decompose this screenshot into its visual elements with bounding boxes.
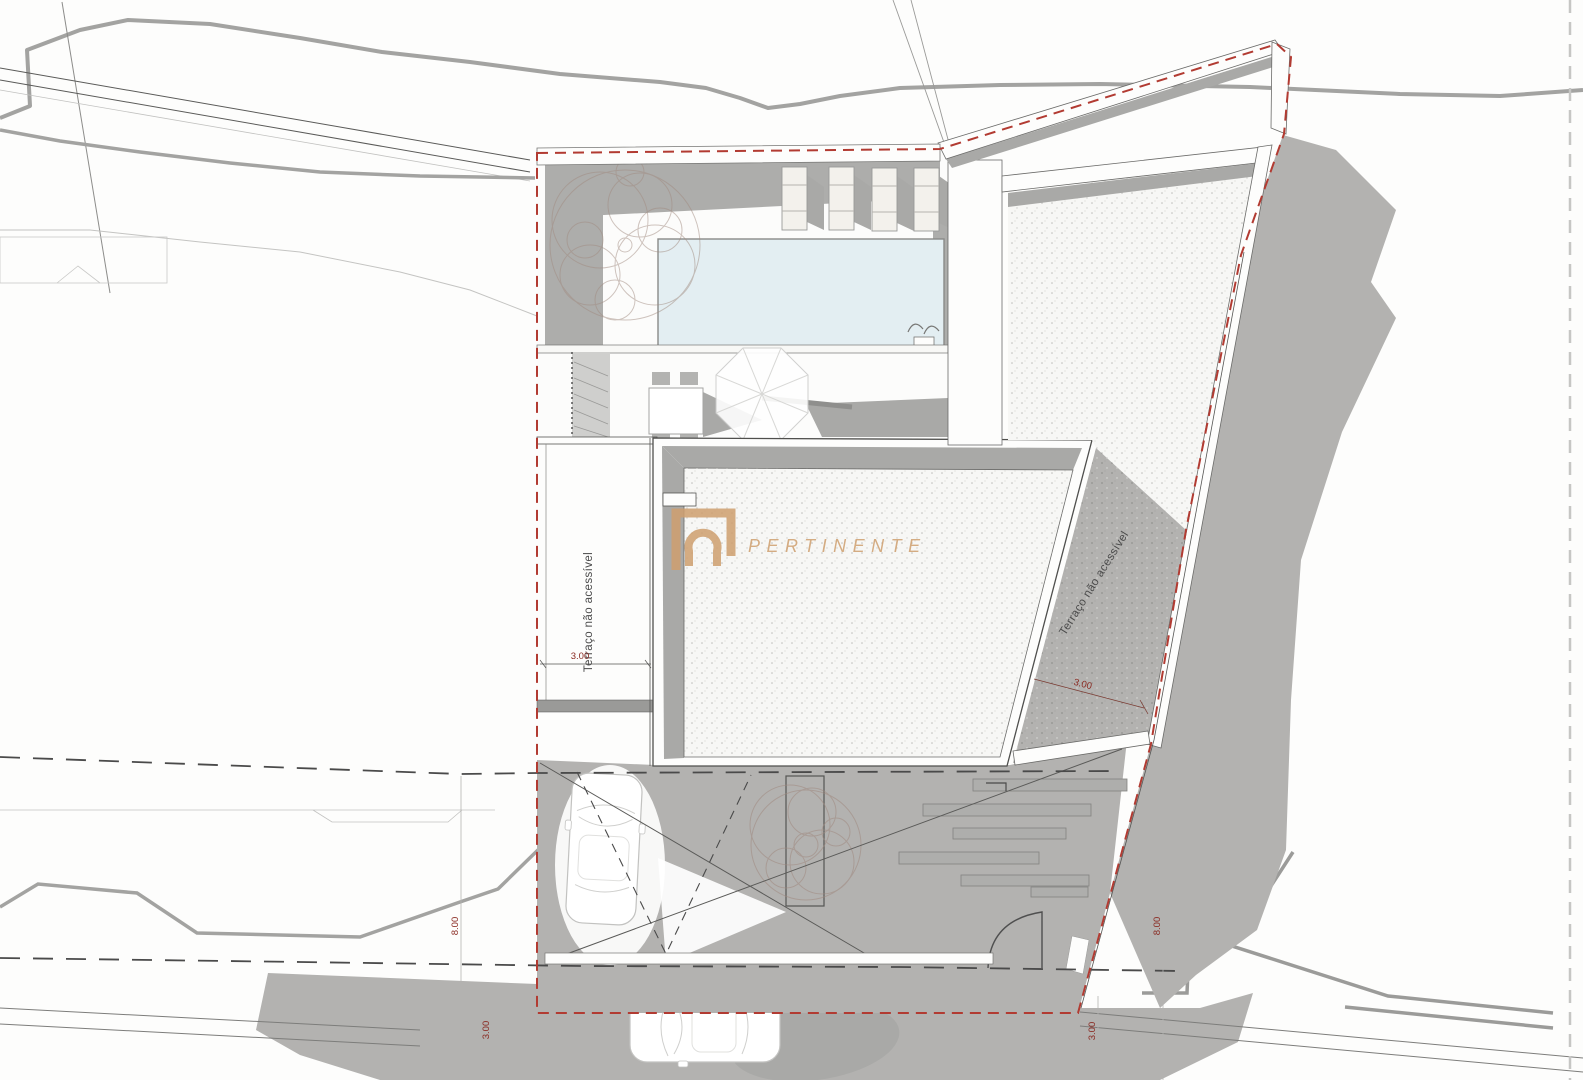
site-plan-page: Terraço não acessível 3.00 Terraço não a… xyxy=(0,0,1583,1080)
parasol-umbrella xyxy=(716,348,808,440)
dim-street-east-value: 3.00 xyxy=(1087,1022,1098,1041)
west-terrace-dim-value: 3.00 xyxy=(571,651,590,662)
driveway-car xyxy=(560,772,648,926)
ramp xyxy=(572,352,610,437)
dim-west-value: 8.00 xyxy=(450,917,461,936)
dim-street-west-value: 3.00 xyxy=(481,1021,492,1040)
dining-table xyxy=(649,388,703,434)
retaining-wall xyxy=(545,953,993,964)
watermark-brand-text: PERTINENTE xyxy=(748,536,927,556)
north-boundary-wall xyxy=(537,144,940,165)
west-terrace-south-band xyxy=(537,700,655,712)
roof-hatch xyxy=(663,493,696,506)
roof-parapet-shadow-top xyxy=(662,446,1082,470)
swimming-pool xyxy=(658,239,944,347)
west-terrace-north-wall xyxy=(537,437,657,444)
site-plan-drawing: Terraço não acessível 3.00 Terraço não a… xyxy=(0,0,1583,1080)
pool-terrace xyxy=(537,158,956,353)
wing-west-wall xyxy=(948,160,1002,445)
dim-east-value: 8.00 xyxy=(1152,917,1163,936)
